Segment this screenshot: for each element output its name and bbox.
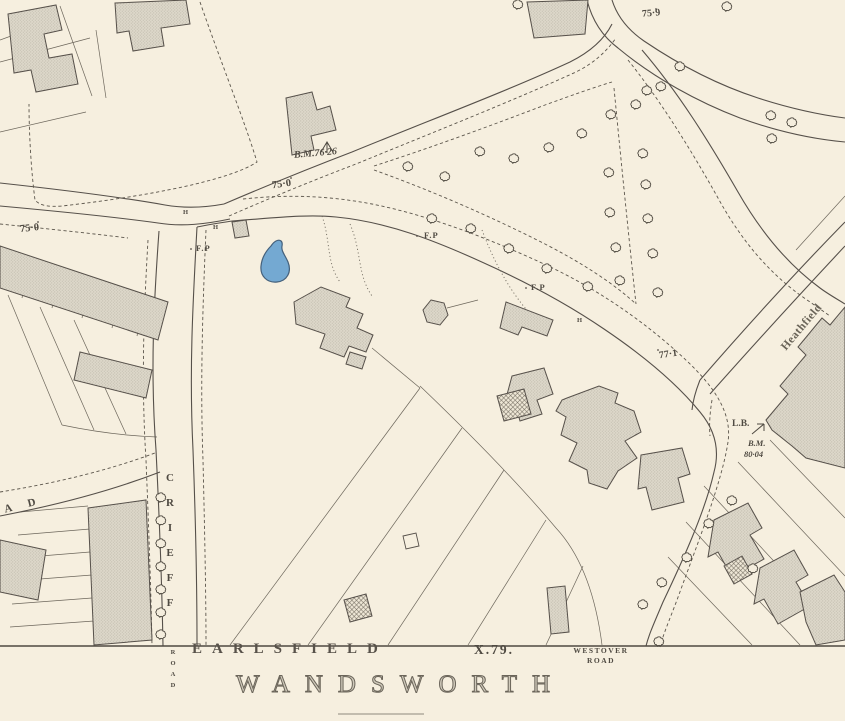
footpath-label-mid: F.P <box>424 231 439 240</box>
building <box>8 5 78 92</box>
tree-icon <box>604 168 614 178</box>
main-house <box>294 287 373 357</box>
tree-icon <box>606 110 616 120</box>
tree-icon <box>653 288 663 298</box>
region-label-wandsworth: WANDSWORTH <box>236 672 565 697</box>
tree-icon <box>766 111 776 121</box>
tree-icon <box>156 630 166 640</box>
map-linework <box>0 0 845 721</box>
hydrant-mark: H <box>183 210 188 217</box>
tree-icon <box>427 214 437 224</box>
spot-height-northeast: 75·9 <box>642 8 661 20</box>
building <box>800 575 845 645</box>
tree-icon <box>631 100 641 110</box>
tree-icon <box>722 2 732 12</box>
tree-icon <box>656 82 666 92</box>
sheet-reference-label: X.79. <box>474 643 514 657</box>
letterbox-arrow-icon <box>752 424 764 434</box>
hydrant-mark: H <box>213 225 218 232</box>
street-label-crieff: CRIEFF <box>164 472 175 622</box>
terrace-row <box>88 500 152 645</box>
building <box>754 550 810 624</box>
tree-icon <box>638 600 648 610</box>
tree-icon <box>440 172 450 182</box>
tree-icon <box>605 208 615 218</box>
tree-icon <box>787 118 797 128</box>
building <box>346 352 366 369</box>
tree-icon <box>675 62 685 72</box>
tree-icon <box>583 282 593 292</box>
tree-icon <box>642 86 652 96</box>
tree-icon <box>657 578 667 588</box>
footpath-label-east: F.P <box>531 283 546 292</box>
tree-icon <box>648 249 658 259</box>
tree-icon <box>509 154 519 164</box>
pond <box>261 240 289 282</box>
tree-icon <box>638 149 648 159</box>
trees <box>156 0 797 647</box>
tree-icon <box>641 180 651 190</box>
spot-height-west: 75·0 <box>20 223 40 235</box>
letterbox-label: L.B. <box>732 420 749 430</box>
terrace-row <box>0 246 168 340</box>
building <box>556 386 641 489</box>
tree-icon <box>577 129 587 139</box>
tree-icon <box>403 162 413 172</box>
tree-icon <box>542 264 552 274</box>
benchmark-right-value: 80·04 <box>744 450 763 459</box>
building <box>115 0 190 51</box>
building <box>638 448 690 510</box>
tree-icon <box>466 224 476 234</box>
street-label-crieff-road-word: ROAD <box>169 649 176 693</box>
building <box>74 352 152 398</box>
westover-line1: WESTOVER <box>563 646 639 656</box>
summerhouse-hexagon <box>423 300 448 325</box>
tree-icon <box>704 519 714 529</box>
shed-outline <box>403 533 419 549</box>
building <box>500 302 553 336</box>
tree-icon <box>513 0 523 10</box>
benchmark-right-abbr: B.M. <box>748 439 765 448</box>
building <box>0 540 46 600</box>
region-label-earlsfield: EARLSFIELD <box>192 642 388 657</box>
tree-icon <box>682 553 692 563</box>
tree-icon <box>767 134 777 144</box>
building <box>527 0 588 38</box>
footpath-label-west: F.P <box>196 244 211 253</box>
building <box>232 220 249 238</box>
tree-icon <box>727 496 737 506</box>
tree-icon <box>504 244 514 254</box>
tree-icon <box>615 276 625 286</box>
building <box>547 586 569 634</box>
glasshouse <box>344 594 372 622</box>
tree-icon <box>544 143 554 153</box>
tree-icon <box>475 147 485 157</box>
street-label-westover-road: WESTOVER ROAD <box>563 646 639 666</box>
map-canvas[interactable]: 75·0 B.M.76·26 75·0 75·9 F.P F.P F.P 77·… <box>0 0 845 721</box>
tree-icon <box>611 243 621 253</box>
westover-line2: ROAD <box>563 656 639 666</box>
hydrant-mark: H <box>577 318 582 325</box>
building <box>286 92 336 155</box>
buildings <box>0 0 845 645</box>
tree-icon <box>643 214 653 224</box>
